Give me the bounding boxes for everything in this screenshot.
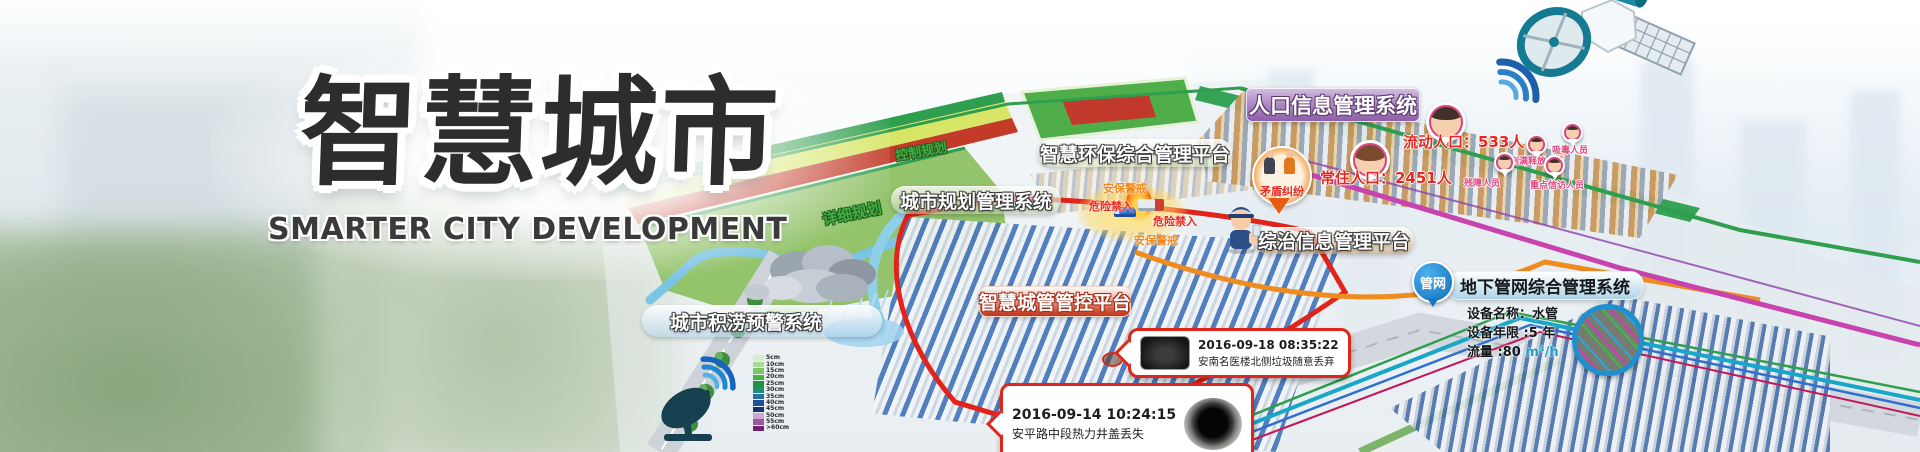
released-person-pin-icon [1526, 134, 1547, 155]
dispute-pointer-icon [1268, 198, 1290, 225]
pipeline-magnifier-icon [1572, 304, 1644, 376]
person-face-icon [1566, 126, 1579, 139]
disabled-person-pin-icon [1494, 152, 1515, 173]
label-pipeline-system: 地下管网综合管理系统 [1446, 271, 1644, 300]
incident-callout-manhole: 2016-09-14 10:24:15 安平路中段热力井盖丢失 [1000, 383, 1254, 452]
incident-desc: 安南名医楼北侧垃圾随意丢弃 [1198, 354, 1339, 369]
legend-swatch [753, 375, 764, 381]
manhole-photo [1184, 398, 1242, 450]
petition-person-label: 重点信访人员 [1530, 178, 1584, 191]
pipe-network-pin-text: 管网 [1420, 273, 1446, 292]
person-face-icon [1530, 138, 1543, 151]
pipe-age-text: 设备年限 :5 年 [1467, 322, 1555, 341]
person-face-icon [1548, 159, 1561, 172]
resident-population-label: 常住人口：2451人 [1320, 167, 1452, 188]
pipe-flow-text: 流量 :80 m³/h [1467, 341, 1559, 360]
smart-city-banner: 智慧城市 SMARTER CITY DEVELOPMENT 控制规划 详细规划 … [0, 0, 1920, 452]
label-flood-warning-text: 城市积涝预警系统 [670, 308, 822, 335]
legend-label: >60cm [766, 425, 789, 431]
legend-swatch [753, 426, 764, 432]
label-city-planning-text: 城市规划管理系统 [900, 187, 1052, 214]
garbage-photo [1140, 336, 1190, 370]
person-face-icon [1498, 156, 1511, 169]
guard-label-bottom: 安保警戒 [1134, 232, 1178, 248]
label-city-planning: 城市规划管理系统 [891, 186, 1061, 214]
legend-swatch [753, 362, 764, 368]
pipe-network-pin-icon: 管网 [1412, 261, 1454, 303]
page-title: 智慧城市 [298, 64, 783, 203]
legend-swatch [753, 387, 764, 393]
pipe-flow-unit: m³/h [1525, 345, 1558, 360]
guard-label-top: 安保警戒 [1103, 180, 1147, 196]
petition-person-pin-icon [1544, 155, 1565, 176]
label-governance-platform: 综治信息管理平台 [1254, 227, 1414, 254]
pipe-name-text: 设备名称：水管 [1467, 303, 1558, 322]
label-flood-warning: 城市积涝预警系统 [642, 305, 882, 337]
police-officer-icon [1222, 204, 1262, 258]
legend-row: >60cm [753, 425, 789, 431]
legend-swatch [753, 400, 764, 406]
dispute-label: 矛盾纠纷 [1254, 183, 1310, 199]
legend-swatch [753, 381, 764, 387]
flood-depth-legend: 5cm 10cm 15cm 20cm 25cm 30cm 35cm 40cm 4… [753, 355, 789, 432]
legend-swatch [753, 355, 764, 361]
pipe-flow-value: 流量 :80 [1467, 345, 1521, 360]
floating-population-label: 流动人口：533人 [1403, 131, 1524, 152]
dispute-marker: 矛盾纠纷 [1252, 146, 1312, 206]
label-env-platform: 智慧环保综合管理平台 [1038, 139, 1232, 167]
dispute-people-icon [1264, 157, 1300, 181]
incident-time: 2016-09-18 08:35:22 [1198, 338, 1339, 352]
disabled-person-label: 残障人员 [1464, 176, 1500, 189]
label-pipeline-text: 地下管网综合管理系统 [1460, 273, 1630, 298]
label-city-mgmt-platform: 智慧城管管控平台 [979, 286, 1131, 317]
fire-truck-icon [1138, 199, 1164, 211]
danger-label-left: 危险禁入 [1089, 198, 1133, 214]
incident-callout-garbage: 2016-09-18 08:35:22 安南名医楼北侧垃圾随意丢弃 [1128, 328, 1351, 378]
page-subtitle: SMARTER CITY DEVELOPMENT [268, 212, 787, 247]
label-env-platform-text: 智慧环保综合管理平台 [1040, 140, 1230, 167]
legend-swatch [753, 419, 764, 425]
label-governance-text: 综治信息管理平台 [1258, 227, 1410, 254]
label-city-mgmt-text: 智慧城管管控平台 [979, 288, 1131, 315]
drug-person-pin-icon [1562, 122, 1583, 143]
legend-swatch [753, 413, 764, 419]
alarm-siren-icon [830, 312, 854, 331]
label-population-system: 人口信息管理系统 [1246, 87, 1420, 122]
satellite-icon [1510, 0, 1695, 84]
legend-swatch [753, 394, 764, 400]
label-population-text: 人口信息管理系统 [1249, 90, 1417, 120]
incident-time: 2016-09-14 10:24:15 [1012, 407, 1176, 423]
danger-label-right: 危险禁入 [1153, 213, 1197, 229]
incident-desc: 安平路中段热力井盖丢失 [1012, 425, 1176, 442]
legend-swatch [753, 368, 764, 374]
legend-swatch [753, 407, 764, 413]
